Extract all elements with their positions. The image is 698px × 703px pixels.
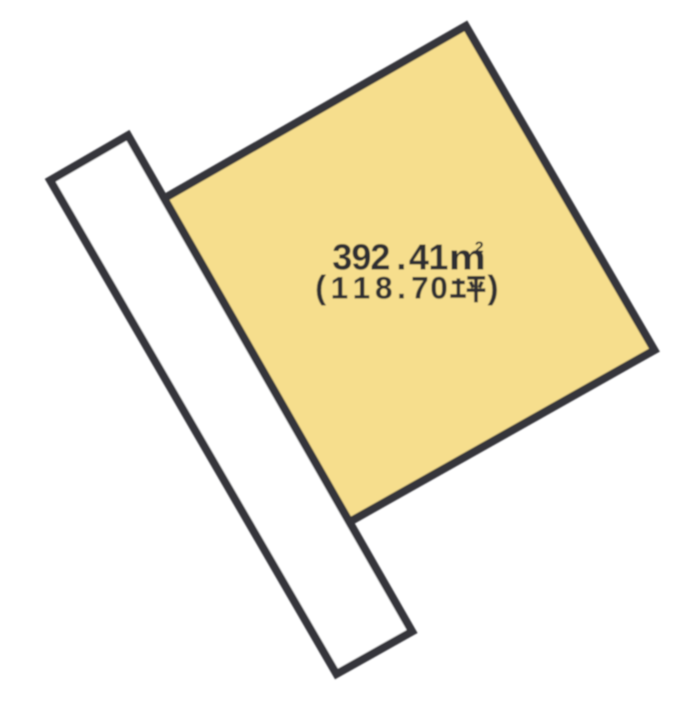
svg-text:2: 2 bbox=[475, 240, 484, 257]
svg-text:): ) bbox=[488, 268, 499, 305]
svg-text:(: ( bbox=[315, 268, 326, 305]
